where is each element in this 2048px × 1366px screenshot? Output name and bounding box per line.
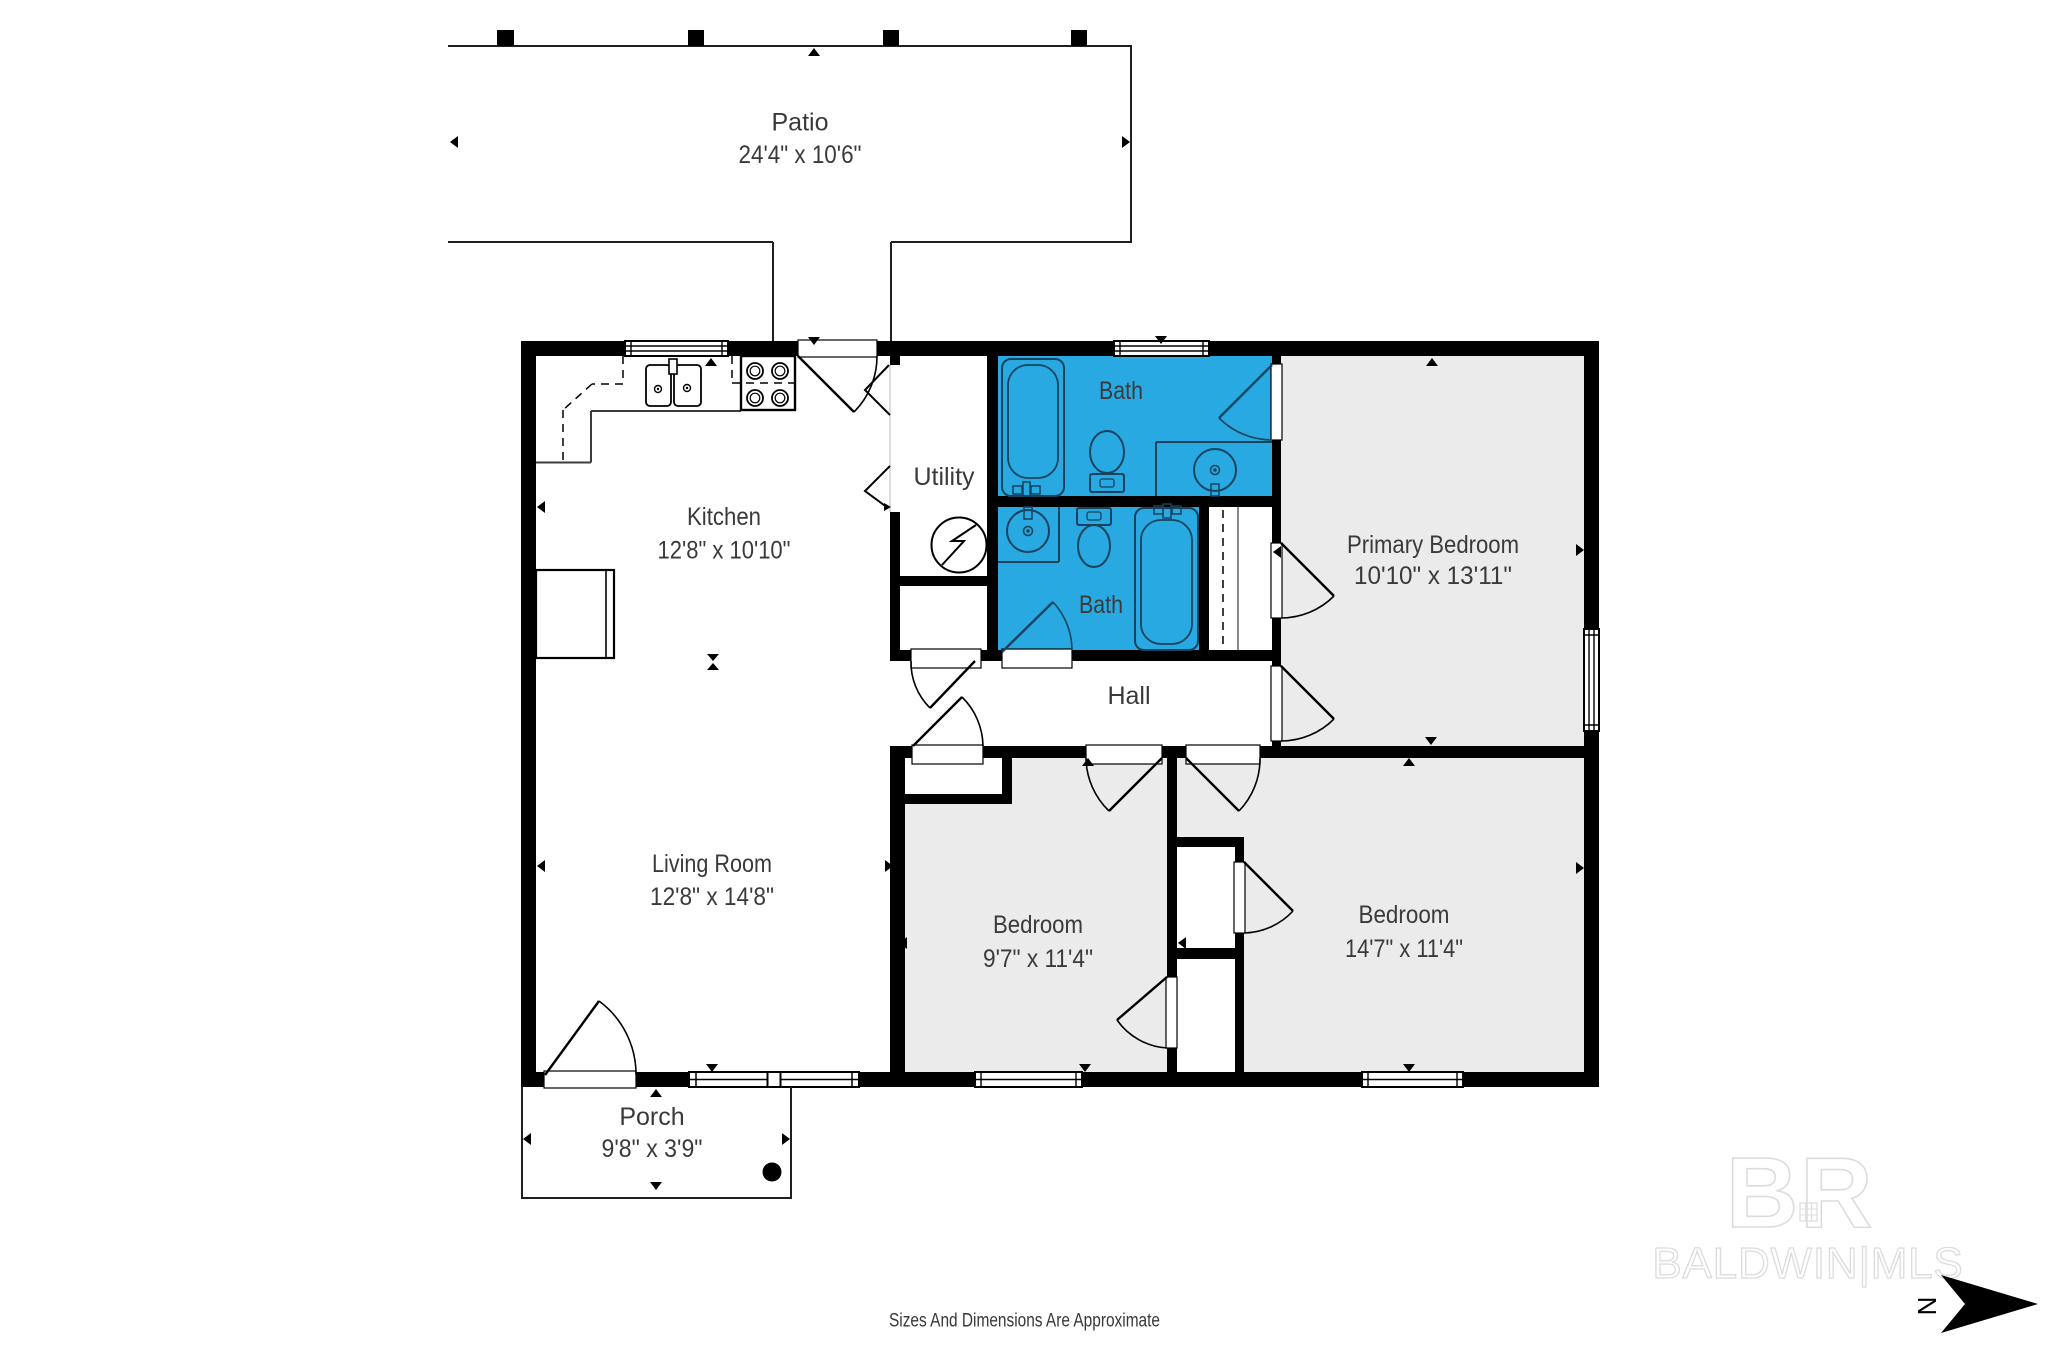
svg-text:N: N bbox=[1912, 1297, 1942, 1316]
svg-text:Porch: Porch bbox=[619, 1103, 684, 1131]
svg-text:Bath: Bath bbox=[1099, 377, 1143, 405]
svg-text:Hall: Hall bbox=[1107, 682, 1150, 710]
svg-text:Kitchen: Kitchen bbox=[687, 503, 761, 531]
svg-text:10'10" x 13'11": 10'10" x 13'11" bbox=[1354, 562, 1512, 590]
svg-text:9'8" x 3'9": 9'8" x 3'9" bbox=[602, 1135, 703, 1163]
svg-text:12'8" x 10'10": 12'8" x 10'10" bbox=[658, 537, 791, 565]
svg-text:14'7" x 11'4": 14'7" x 11'4" bbox=[1345, 935, 1463, 963]
svg-text:Living Room: Living Room bbox=[652, 850, 772, 878]
svg-text:9'7" x 11'4": 9'7" x 11'4" bbox=[983, 945, 1093, 973]
svg-text:Sizes And Dimensions Are Appro: Sizes And Dimensions Are Approximate bbox=[889, 1311, 1160, 1332]
svg-text:BALDWIN|MLS: BALDWIN|MLS bbox=[1652, 1239, 1963, 1288]
svg-text:Bedroom: Bedroom bbox=[1359, 901, 1450, 929]
svg-text:24'4" x 10'6": 24'4" x 10'6" bbox=[739, 141, 862, 169]
svg-text:Utility: Utility bbox=[913, 463, 975, 491]
svg-text:BR: BR bbox=[1726, 1137, 1874, 1249]
svg-text:Bedroom: Bedroom bbox=[993, 911, 1083, 939]
svg-text:12'8" x 14'8": 12'8" x 14'8" bbox=[650, 883, 774, 911]
svg-text:Bath: Bath bbox=[1079, 591, 1123, 619]
svg-text:Patio: Patio bbox=[772, 109, 829, 137]
svg-text:Primary Bedroom: Primary Bedroom bbox=[1347, 531, 1519, 559]
